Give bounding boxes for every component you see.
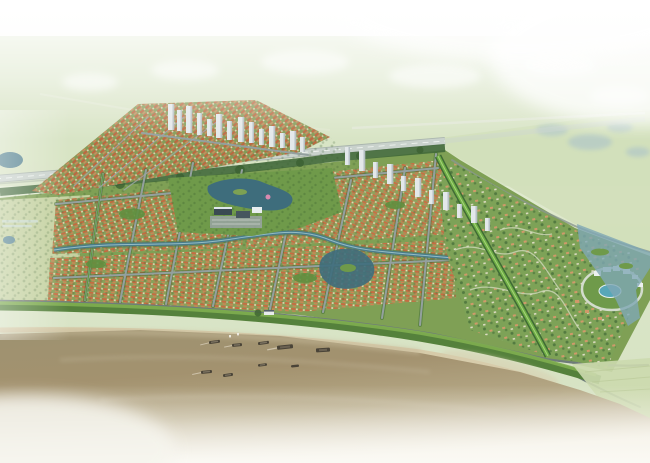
lagoon-island [340,264,356,272]
commercial-roof-ridge [214,207,232,209]
villa [598,317,602,320]
left-haze [0,110,70,340]
micro-park [293,273,317,283]
micro-park [86,260,106,269]
commercial-building [236,211,250,218]
tower-block [359,150,365,171]
commercial-building-white [252,207,262,213]
channel-island [619,263,633,269]
masterplan-render [0,0,650,463]
tower-block [373,162,378,178]
channel-island [591,249,609,256]
render-canvas [0,0,650,463]
micro-park [385,201,405,209]
villa [585,310,589,313]
micro-park [119,209,145,220]
tower-block [387,164,393,184]
bank-tree [255,310,262,317]
tree-clump [417,147,424,154]
blossom-tree [266,195,271,200]
sail [229,335,231,337]
tower-block [415,178,421,197]
sail [237,333,239,335]
tower-block [345,147,350,165]
villa [575,300,579,303]
tower-block [429,190,434,204]
bank-building-roof [264,310,274,312]
tower-block [401,176,406,191]
lake-island [233,189,247,195]
tower-block [485,218,490,231]
tower-block [443,192,449,210]
distant-lake [626,147,650,157]
tower-block [457,204,462,218]
tower-block [471,206,477,223]
